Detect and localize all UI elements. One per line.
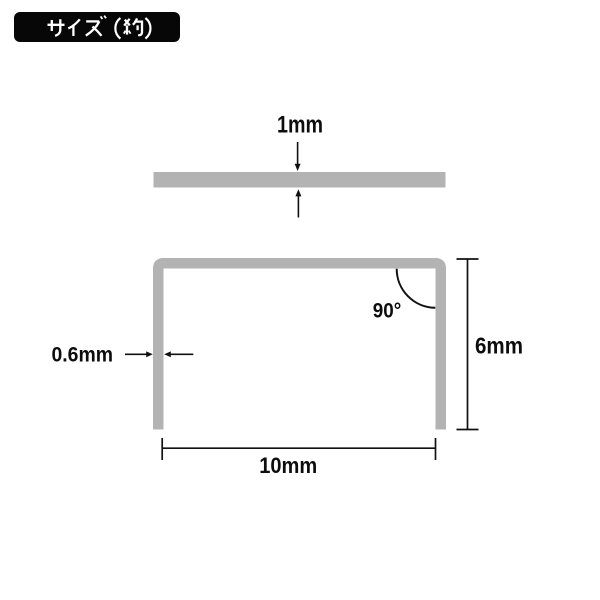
svg-text:10mm: 10mm <box>259 453 317 478</box>
svg-text:1mm: 1mm <box>277 112 323 139</box>
svg-text:6mm: 6mm <box>475 333 523 359</box>
svg-text:0.6mm: 0.6mm <box>52 342 114 366</box>
svg-text:90°: 90° <box>373 300 402 323</box>
